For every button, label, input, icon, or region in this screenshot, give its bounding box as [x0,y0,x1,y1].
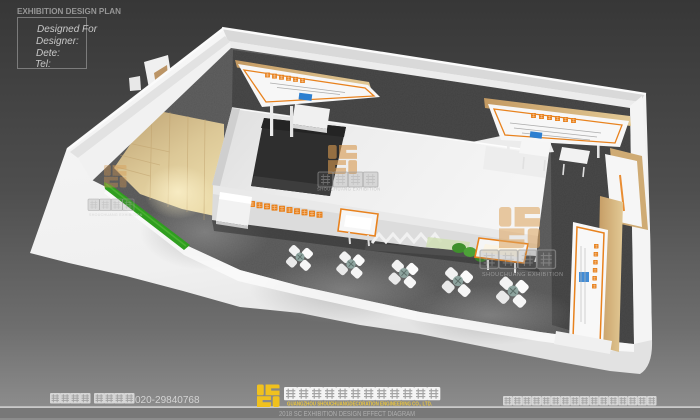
svg-text:EXHIBITION DESIGN PLAN: EXHIBITION DESIGN PLAN [17,7,121,16]
svg-text:GUANGZHOU SHOUCHUANGDECORATION: GUANGZHOU SHOUCHUANGDECORATION ENGINEERI… [287,402,432,408]
svg-text:SHOUCHUANG EXHIBITION: SHOUCHUANG EXHIBITION [317,187,381,192]
svg-text:020-29840768: 020-29840768 [135,395,200,406]
svg-text:Dete:: Dete: [36,48,60,59]
svg-text:Tel:: Tel: [35,59,51,70]
svg-text:2018 SC EXHIBITION DESIGN EFFE: 2018 SC EXHIBITION DESIGN EFFECT DIAGRAM [279,409,415,418]
svg-text:Designer:: Designer: [36,36,79,47]
svg-text:SHOUCHUANG EXHIBITION: SHOUCHUANG EXHIBITION [89,213,143,217]
svg-text:SHOUCHUANG EXHIBITION: SHOUCHUANG EXHIBITION [482,272,563,278]
svg-text:Designed For: Designed For [37,24,98,35]
